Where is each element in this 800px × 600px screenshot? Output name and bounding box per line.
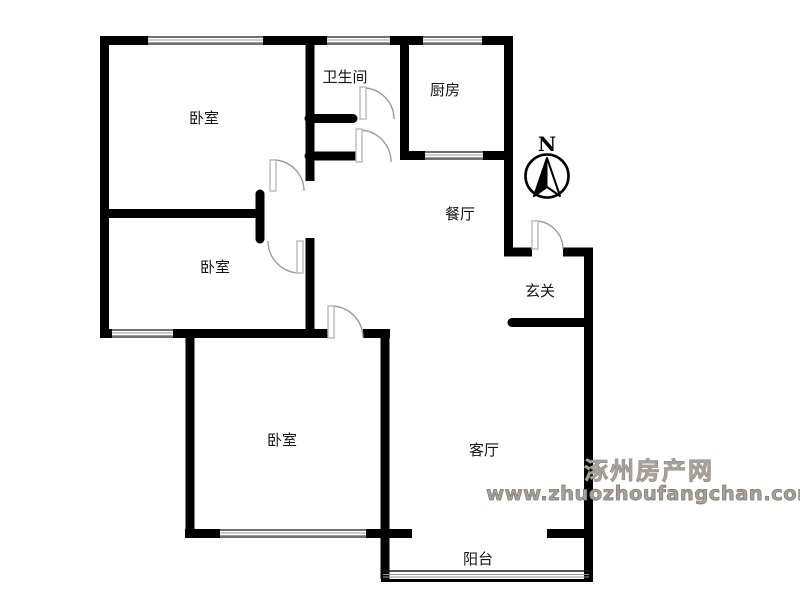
window-kitchen-top xyxy=(423,36,482,45)
door-bedroom-1 xyxy=(270,160,304,191)
floor-plan-canvas: N 卧室 卫生间 厨房 餐厅 玄关 卧室 卧室 客厅 阳台 涿州房产网 www.… xyxy=(0,0,800,600)
window-balcony xyxy=(381,571,593,581)
door-bedroom-2 xyxy=(268,241,303,273)
floor-plan-page: N 卧室 卫生间 厨房 餐厅 玄关 卧室 卧室 客厅 阳台 涿州房产网 www.… xyxy=(0,0,800,600)
room-label-bedroom-1: 卧室 xyxy=(189,109,219,127)
door-bedroom-3 xyxy=(328,306,363,338)
window-bedroom3 xyxy=(220,529,366,538)
watermark: 涿州房产网 www.zhuozhoufangchan.com xyxy=(486,457,800,505)
room-label-bedroom-2: 卧室 xyxy=(200,258,230,276)
window-bathroom xyxy=(327,36,390,45)
compass-north-label: N xyxy=(538,132,556,156)
door-entrance xyxy=(532,221,563,249)
room-label-balcony: 阳台 xyxy=(463,550,493,568)
north-compass-icon: N xyxy=(526,132,569,198)
room-label-foyer: 玄关 xyxy=(525,282,555,300)
room-label-living: 客厅 xyxy=(469,441,499,459)
room-label-bedroom-3: 卧室 xyxy=(267,431,297,449)
watermark-site-name: 涿州房产网 xyxy=(584,457,714,485)
door-bathroom xyxy=(360,87,394,119)
window-kitchen-sliding-door xyxy=(425,151,483,160)
door-bathroom-vestibule xyxy=(356,129,391,162)
window-bedroom1 xyxy=(148,36,263,45)
room-label-kitchen: 厨房 xyxy=(430,81,460,99)
room-label-dining: 餐厅 xyxy=(445,205,475,223)
watermark-site-url: www.zhuozhoufangchan.com xyxy=(486,482,800,505)
window-bedroom2 xyxy=(112,329,173,338)
room-label-bathroom: 卫生间 xyxy=(322,68,367,86)
